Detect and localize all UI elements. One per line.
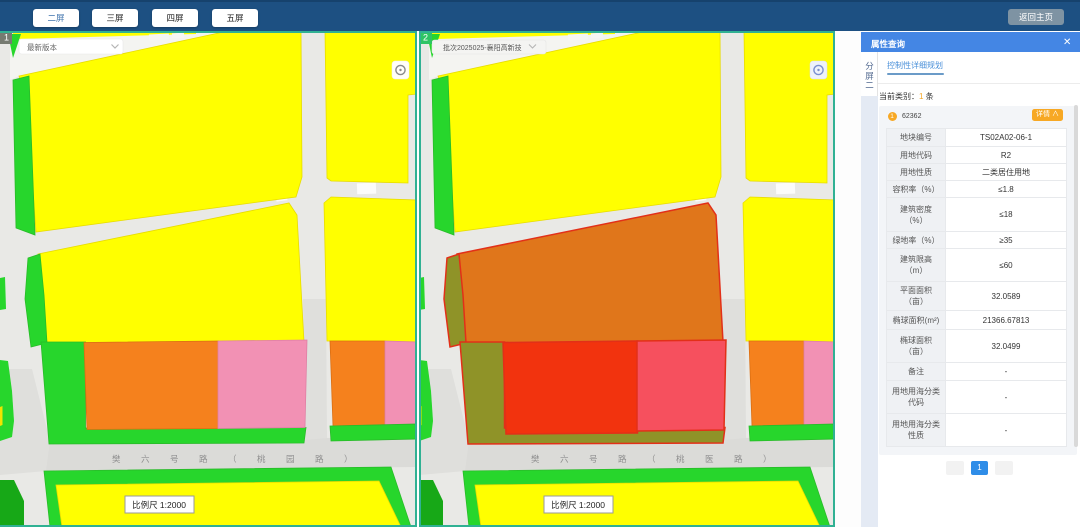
svg-text:比例尺 1:2000: 比例尺 1:2000 [132,500,186,510]
svg-text:2: 2 [423,33,428,43]
svg-text:批次2025025-襄阳高新技: 批次2025025-襄阳高新技 [443,43,522,52]
svg-text:樊六号路（桃医路）: 樊六号路（桃医路） [531,454,792,464]
svg-text:比例尺 1:2000: 比例尺 1:2000 [551,500,605,510]
svg-text:樊六号路（桃园路）: 樊六号路（桃园路） [112,454,373,464]
svg-text:最新版本: 最新版本 [27,42,57,52]
svg-text:1: 1 [4,33,9,43]
